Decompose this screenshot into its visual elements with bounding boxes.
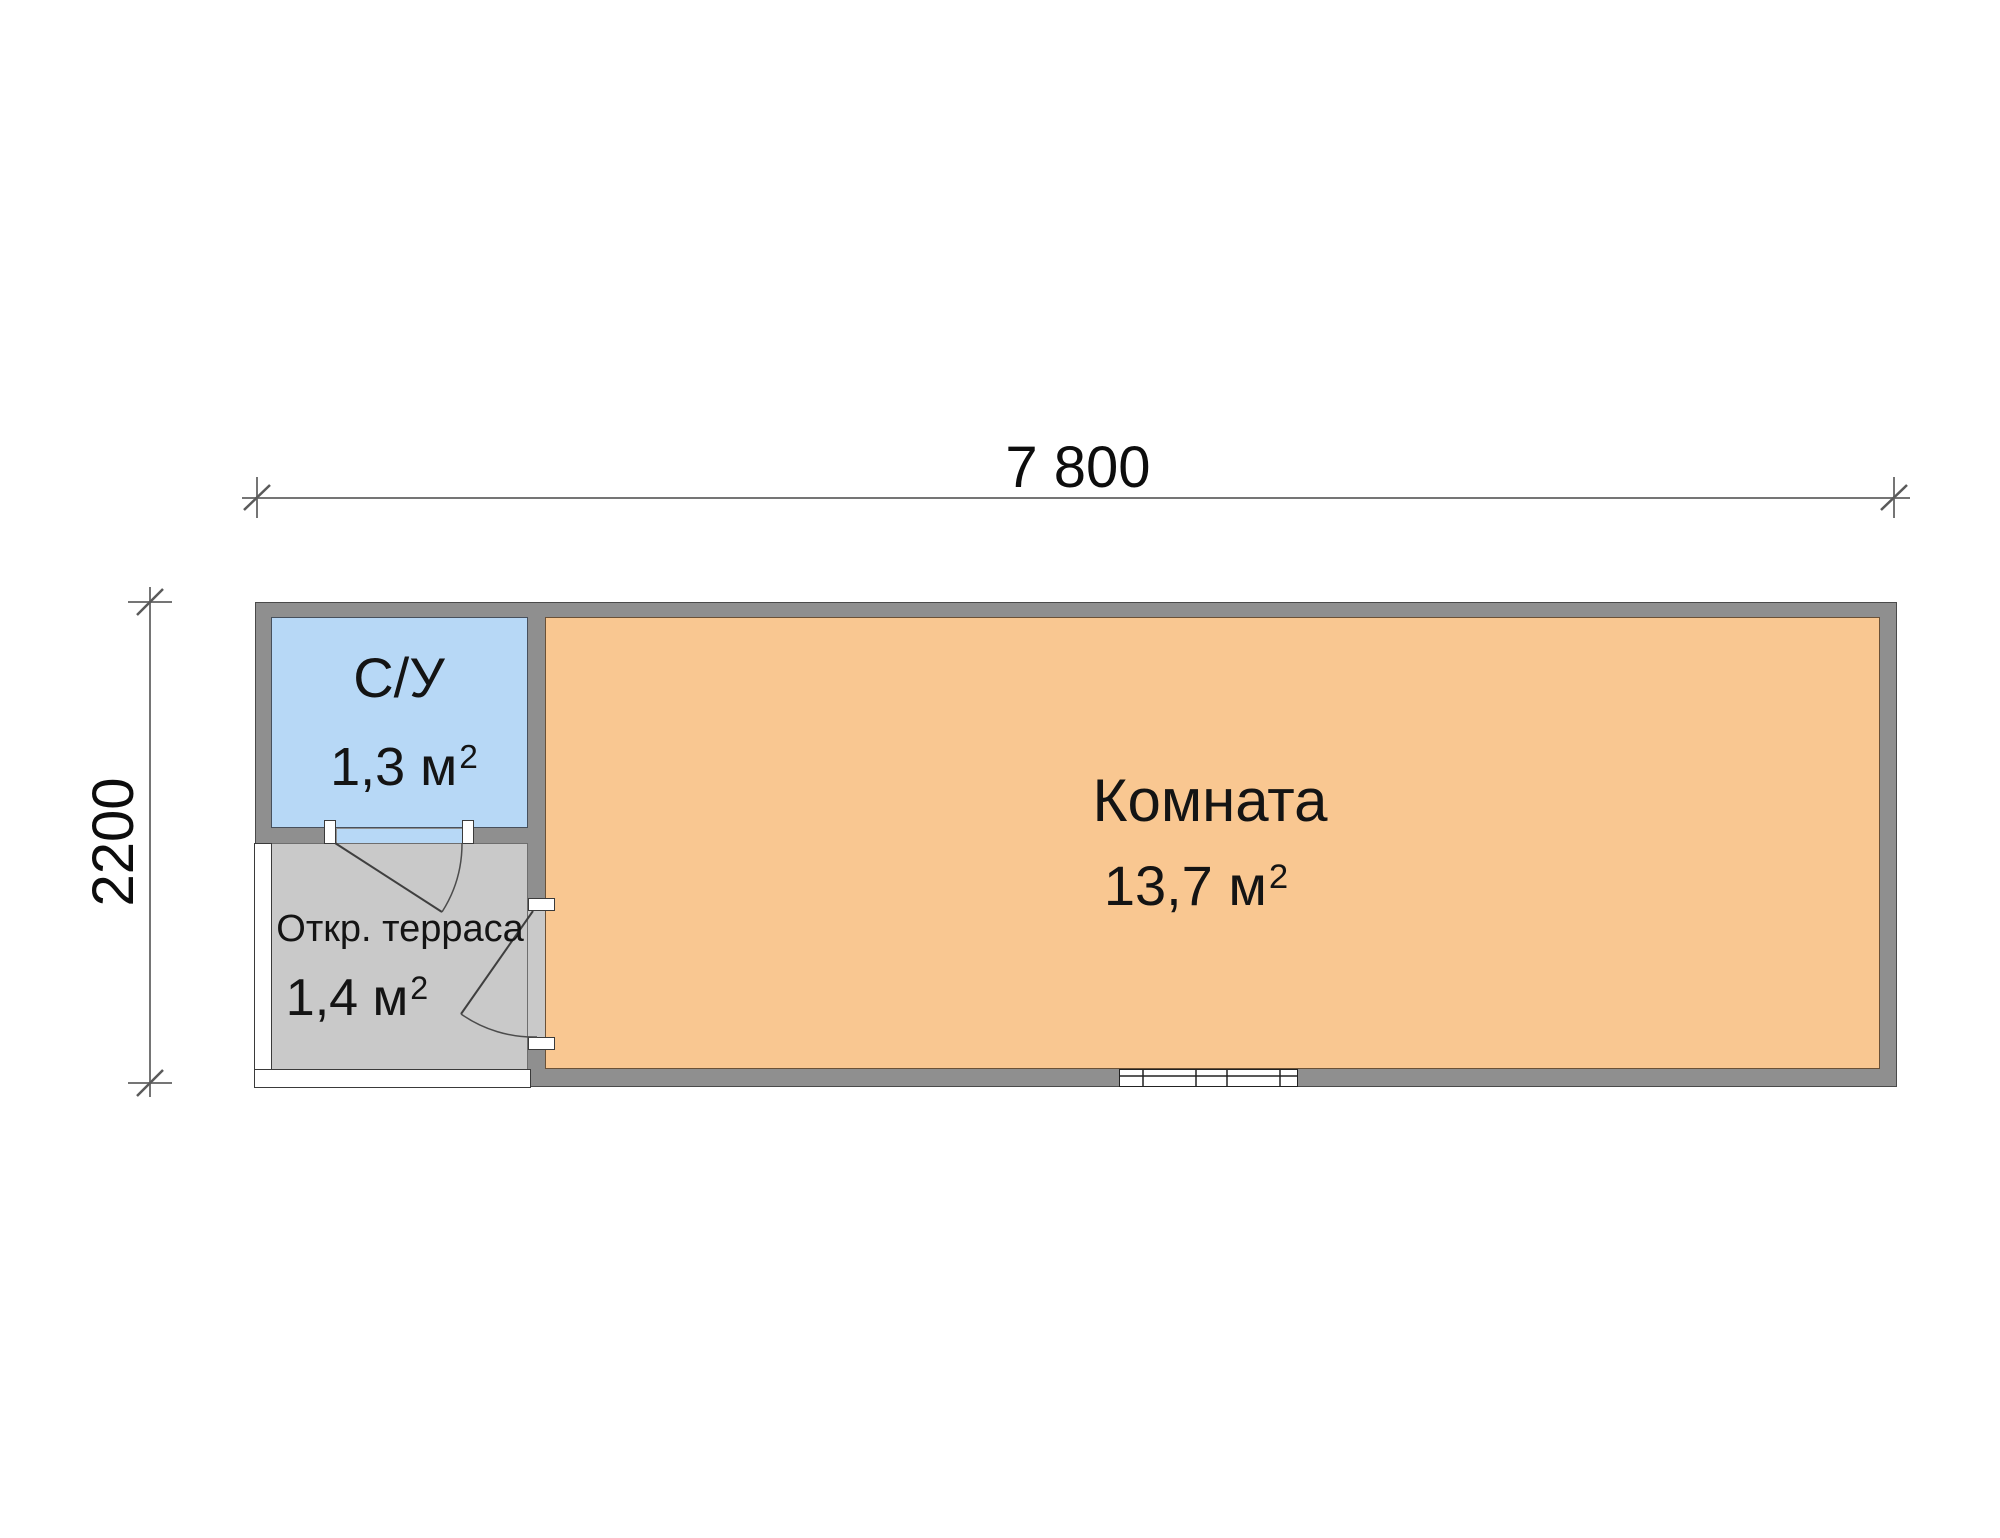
- floor-plan: 7 800 2200: [0, 0, 2000, 1538]
- main-room-door-jamb-top: [528, 898, 555, 911]
- left-dimension-line: [149, 587, 151, 1097]
- main-room-area-label: 13,7 м2: [1104, 858, 1288, 914]
- bathroom-door-jamb-left: [324, 820, 336, 844]
- terrace-area: [271, 843, 528, 1070]
- top-dimension-witness-left: [256, 477, 258, 518]
- main-room-door-opening: [528, 911, 545, 1038]
- terrace-open-edge-left: [254, 843, 272, 1088]
- terrace-area-exponent: 2: [410, 970, 428, 1006]
- terrace-open-edge-bottom: [254, 1069, 531, 1088]
- top-dimension-witness-right: [1893, 477, 1895, 518]
- bathroom-area-label: 1,3 м2: [330, 740, 478, 794]
- bathroom-area-exponent: 2: [459, 739, 478, 776]
- terrace-label: Откр. терраса: [276, 910, 523, 948]
- window: [1119, 1069, 1298, 1087]
- top-dimension-label: 7 800: [1005, 439, 1150, 497]
- bathroom-area-value: 1,3 м: [330, 737, 457, 797]
- left-dimension-label: 2200: [85, 777, 143, 906]
- main-room-label: Комната: [1093, 771, 1328, 831]
- bathroom-door-jamb-right: [462, 820, 474, 844]
- main-room-area-exponent: 2: [1269, 858, 1288, 896]
- terrace-area-label: 1,4 м2: [286, 972, 428, 1024]
- bathroom-label: С/У: [353, 650, 445, 706]
- main-room-door-jamb-bottom: [528, 1037, 555, 1050]
- main-room-area-value: 13,7 м: [1104, 854, 1267, 917]
- bathroom-door-opening: [337, 829, 463, 843]
- left-dimension-witness-bottom: [128, 1082, 172, 1084]
- main-room: [545, 617, 1880, 1069]
- left-dimension-witness-top: [128, 601, 172, 603]
- terrace-area-value: 1,4 м: [286, 969, 408, 1027]
